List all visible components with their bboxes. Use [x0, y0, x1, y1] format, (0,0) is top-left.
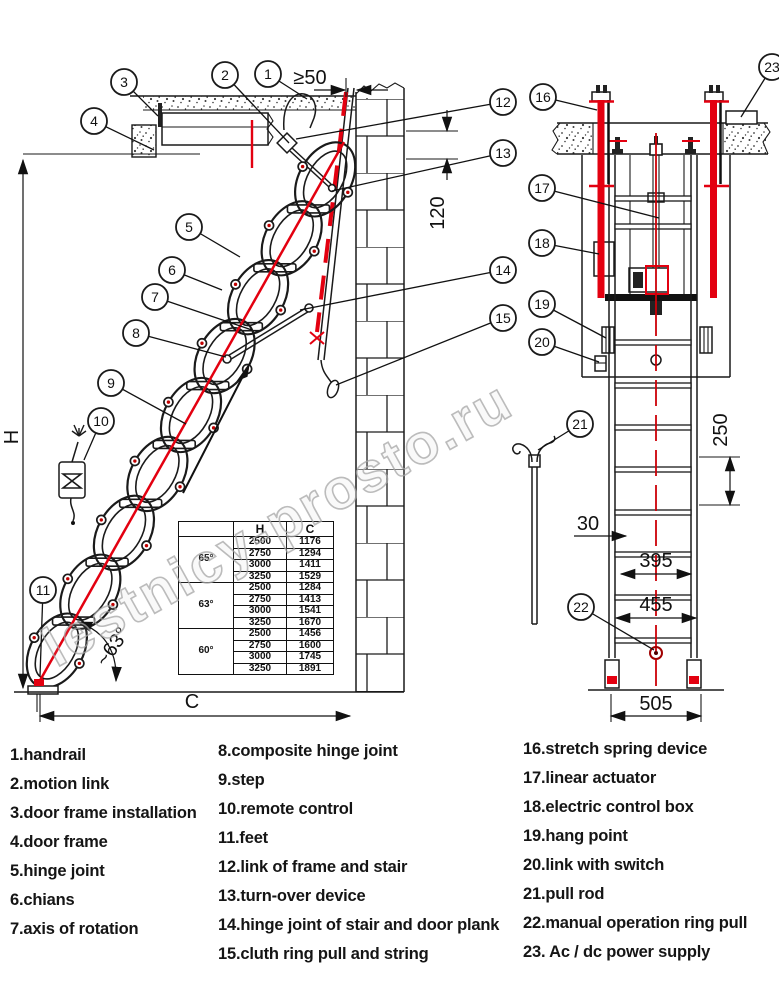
- hang-point-left: [602, 327, 614, 353]
- legend-item: 15.cluth ring pull and string: [218, 940, 499, 969]
- power-supply-box: [726, 111, 757, 124]
- table-cell: 2500: [234, 629, 287, 641]
- callout-5: 5: [176, 214, 240, 257]
- rung: [615, 467, 691, 472]
- callout-number: 9: [107, 375, 115, 391]
- callout-16: 16: [530, 84, 597, 110]
- callout-number: 17: [534, 180, 550, 196]
- table-cell: 3250: [234, 663, 287, 675]
- legend-item: 14.hinge joint of stair and door plank: [218, 911, 499, 940]
- h-dimension: H: [1, 160, 23, 688]
- c-dimension: C: [40, 691, 350, 722]
- legend-item: 23. Ac / dc power supply: [523, 938, 747, 967]
- dim-30: 30: [574, 513, 626, 536]
- legend-item: 13.turn-over device: [218, 882, 499, 911]
- c-label: C: [185, 691, 199, 713]
- dim-455-label: 455: [639, 594, 672, 616]
- h-label: H: [1, 430, 23, 444]
- dim-120: 120: [406, 110, 458, 230]
- rung: [615, 425, 691, 430]
- table-cell: 3000: [234, 606, 287, 618]
- table-cell: 1456: [287, 629, 334, 641]
- table-cell: 3000: [234, 560, 287, 572]
- legend-item: 21.pull rod: [523, 880, 747, 909]
- table-cell: 1670: [287, 617, 334, 629]
- legend-item: 12.link of frame and stair: [218, 853, 499, 882]
- table-cell: 2750: [234, 548, 287, 560]
- callout-number: 14: [495, 262, 511, 278]
- table-cell: 3000: [234, 652, 287, 664]
- legend-item: 7.axis of rotation: [10, 915, 197, 944]
- cloth-ring: [325, 379, 341, 399]
- dim-120-label: 120: [427, 196, 449, 229]
- rung: [615, 383, 691, 388]
- callout-number: 20: [534, 334, 550, 350]
- legend-item: 3.door frame installation: [10, 799, 197, 828]
- legend-item: 16.stretch spring device: [523, 735, 747, 764]
- dim-30-label: 30: [577, 513, 599, 535]
- remote-control-icon: [59, 425, 86, 525]
- callout-6: 6: [159, 257, 222, 290]
- angle-cell: 60°: [179, 629, 234, 675]
- door-frame: [23, 103, 273, 168]
- table-cell: 2500: [234, 583, 287, 595]
- legend-item: 19.hang point: [523, 822, 747, 851]
- callout-3: 3: [111, 69, 158, 116]
- callout-number: 13: [495, 145, 511, 161]
- dim-50-label: ≥50: [293, 67, 326, 89]
- callout-number: 21: [572, 416, 588, 432]
- callout-23: 23: [741, 54, 779, 117]
- callout-number: 15: [495, 310, 511, 326]
- switch-box: [595, 356, 606, 371]
- legend-item: 2.motion link: [10, 770, 197, 799]
- callout-18: 18: [529, 230, 599, 256]
- ceiling-left: [130, 96, 356, 110]
- legend-item: 20.link with switch: [523, 851, 747, 880]
- table-cell: 1600: [287, 640, 334, 652]
- table-cell: 1284: [287, 583, 334, 595]
- table-header-c: C: [287, 522, 334, 537]
- pull-rod: [513, 436, 555, 624]
- table-cell: 1294: [287, 548, 334, 560]
- legend-item: 10.remote control: [218, 795, 499, 824]
- callout-number: 22: [573, 599, 589, 615]
- rung: [615, 340, 691, 345]
- table-header-h: H: [234, 522, 287, 537]
- table-cell: 3250: [234, 571, 287, 583]
- callout-number: 5: [185, 219, 193, 235]
- callout-number: 4: [90, 113, 98, 129]
- table-cell: 1745: [287, 652, 334, 664]
- table-cell: 1529: [287, 571, 334, 583]
- dim-250-label: 250: [710, 413, 732, 446]
- angle-label: ~63°: [92, 624, 134, 671]
- callout-10: 10: [84, 408, 114, 460]
- legend-item: 22.manual operation ring pull: [523, 909, 747, 938]
- table-cell: 2750: [234, 640, 287, 652]
- table-header-blank: [179, 522, 234, 537]
- callout-number: 19: [534, 296, 550, 312]
- angle-cell: 63°: [179, 583, 234, 629]
- callout-number: 6: [168, 262, 176, 278]
- callout-number: 11: [36, 582, 51, 598]
- ladder-technical-drawing: { "watermark": "lestnicy-prosto.ru", "ca…: [0, 0, 779, 985]
- table-cell: 1413: [287, 594, 334, 606]
- callout-number: 7: [151, 289, 159, 305]
- callout-number: 10: [93, 413, 109, 429]
- table-cell: 2500: [234, 537, 287, 549]
- legend-item: 11.feet: [218, 824, 499, 853]
- brick-wall: [356, 83, 404, 692]
- table-cell: 2750: [234, 594, 287, 606]
- callout-number: 16: [535, 89, 551, 105]
- ladder-feet: [28, 679, 58, 712]
- legend-item: 4.door frame: [10, 828, 197, 857]
- callout-number: 23: [764, 59, 779, 75]
- table-cell: 1176: [287, 537, 334, 549]
- callout-21: 21: [538, 411, 593, 450]
- dim-505-label: 505: [639, 693, 672, 715]
- callout-number: 12: [495, 94, 511, 110]
- spec-table: H C 65°250011762750129430001411325015296…: [178, 521, 334, 675]
- legend-item: 18.electric control box: [523, 793, 747, 822]
- legend-column-1: 1.handrail2.motion link3.door frame inst…: [10, 741, 197, 944]
- callout-number: 18: [534, 235, 550, 251]
- legend-item: 17.linear actuator: [523, 764, 747, 793]
- legend-item: 8.composite hinge joint: [218, 737, 499, 766]
- legend-item: 1.handrail: [10, 741, 197, 770]
- angle-cell: 65°: [179, 537, 234, 583]
- rung: [615, 638, 691, 643]
- legend-column-2: 8.composite hinge joint9.step10.remote c…: [218, 737, 499, 969]
- legend-item: 5.hinge joint: [10, 857, 197, 886]
- table-cell: 1411: [287, 560, 334, 572]
- table-cell: 1541: [287, 606, 334, 618]
- callout-number: 1: [264, 66, 272, 82]
- callout-number: 3: [120, 74, 128, 90]
- table-cell: 3250: [234, 617, 287, 629]
- callout-8: 8: [123, 320, 226, 357]
- dim-395-label: 395: [639, 550, 672, 572]
- legend-item: 6.chians: [10, 886, 197, 915]
- callout-20: 20: [529, 329, 599, 362]
- dim-250: 250: [699, 413, 740, 505]
- diagram-canvas: H C ≥50 120 ~63°: [0, 0, 779, 745]
- table-cell: 1891: [287, 663, 334, 675]
- mounting-bolts: [609, 136, 700, 155]
- hang-point-right: [700, 327, 712, 353]
- stretch-spring-left: [589, 85, 614, 298]
- legend-item: 9.step: [218, 766, 499, 795]
- linear-actuator: [629, 155, 668, 365]
- callout-number: 2: [221, 67, 229, 83]
- legend-column-3: 16.stretch spring device17.linear actuat…: [523, 735, 747, 967]
- callout-number: 8: [132, 325, 140, 341]
- rung: [615, 510, 691, 515]
- dim-505: 505: [611, 693, 701, 722]
